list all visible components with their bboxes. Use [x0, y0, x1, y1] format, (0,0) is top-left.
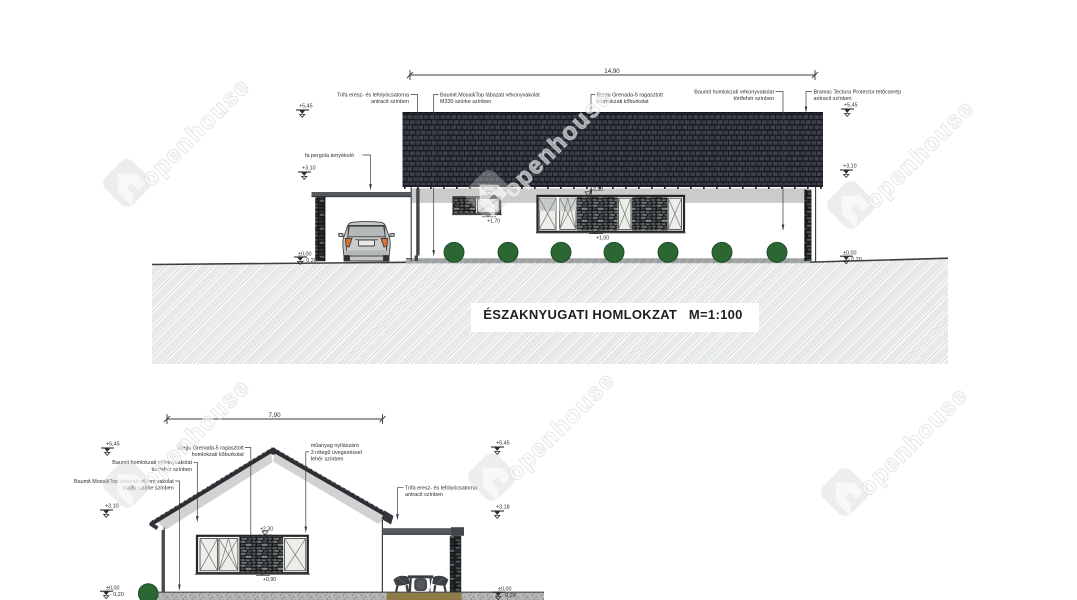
- svg-text:±0,00: ±0,00: [843, 250, 856, 256]
- svg-text:+5,45: +5,45: [844, 103, 858, 109]
- svg-text:±0,00: ±0,00: [498, 586, 511, 592]
- svg-text:+5,45: +5,45: [299, 104, 313, 110]
- svg-text:törtfehér színben: törtfehér színben: [734, 96, 774, 102]
- svg-text:+0,90: +0,90: [263, 577, 276, 583]
- svg-text:antracit színben: antracit színben: [814, 96, 852, 102]
- svg-text:+3,10: +3,10: [105, 504, 119, 510]
- svg-text:M330 szürke színben: M330 szürke színben: [440, 99, 491, 105]
- svg-text:Trifa eresz- és lefolyócsatorn: Trifa eresz- és lefolyócsatorna: [405, 486, 477, 492]
- svg-text:Trifa eresz- és lefolyócsatorn: Trifa eresz- és lefolyócsatorna: [337, 92, 409, 98]
- svg-text:+2,30: +2,30: [590, 187, 603, 193]
- svg-text:ÉSZAKNYUGATI HOMLOKZAT M=1:1: ÉSZAKNYUGATI HOMLOKZAT M=1:100: [483, 307, 742, 322]
- svg-text:Bramac Tectura Protector tetőc: Bramac Tectura Protector tetőcserép: [814, 89, 902, 95]
- svg-text:+1,70: +1,70: [487, 219, 500, 225]
- svg-text:fehér színben: fehér színben: [311, 456, 344, 462]
- svg-text:14,90: 14,90: [604, 68, 620, 75]
- svg-text:+5,45: +5,45: [496, 441, 510, 447]
- svg-text:+3,18: +3,18: [496, 505, 510, 511]
- svg-text:Baumit MosaikTop lábazati véko: Baumit MosaikTop lábazati vékonyvakolat: [440, 92, 540, 98]
- svg-text:+5,45: +5,45: [106, 442, 120, 448]
- svg-text:műanyag nyílászáró: műanyag nyílászáró: [311, 443, 359, 449]
- svg-text:+3,10: +3,10: [843, 164, 857, 170]
- svg-text:- 0,20: - 0,20: [303, 258, 317, 264]
- svg-text:- 0,20: - 0,20: [502, 593, 516, 599]
- svg-text:homlokzati kőburkolat: homlokzati kőburkolat: [192, 452, 245, 458]
- svg-text:±0,00: ±0,00: [106, 585, 119, 591]
- svg-text:7,90: 7,90: [268, 412, 281, 419]
- svg-text:3 rétegű üvegezéssel: 3 rétegű üvegezéssel: [311, 450, 362, 456]
- svg-text:antracit színben: antracit színben: [405, 492, 443, 498]
- svg-text:- 0,20: - 0,20: [110, 592, 124, 598]
- svg-text:Baumit homlokzati vékonyvakola: Baumit homlokzati vékonyvakolat: [694, 89, 774, 95]
- svg-text:fa pergola árnyékoló: fa pergola árnyékoló: [305, 153, 354, 159]
- svg-text:antracit színben: antracit színben: [371, 99, 409, 105]
- svg-text:+3,10: +3,10: [302, 166, 316, 172]
- svg-text:+1,00: +1,00: [596, 235, 609, 241]
- svg-text:- 0,20: - 0,20: [848, 257, 862, 263]
